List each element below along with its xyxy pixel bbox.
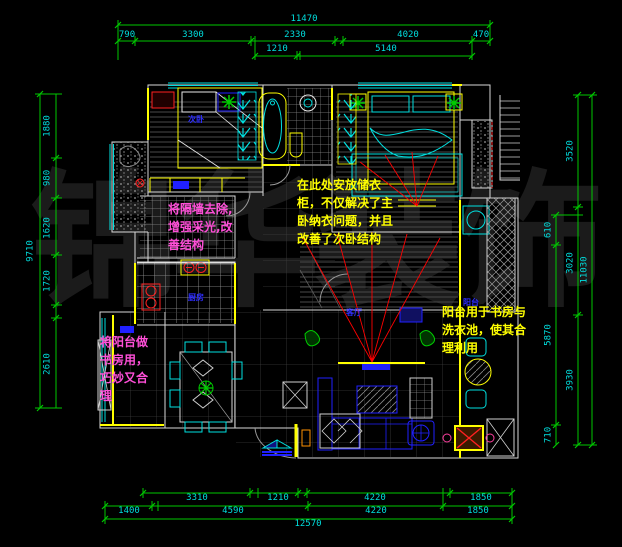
dim-bottom-4220: 4220	[364, 494, 386, 503]
dim-top-overall: 11470	[290, 15, 317, 24]
balcony-chair	[466, 390, 486, 408]
dim-right-3520: 3520	[567, 140, 576, 162]
shelf-marker	[120, 326, 134, 333]
dim-right-overall: 11030	[581, 256, 590, 283]
round-table	[465, 359, 491, 385]
dim-bottom-overall: 12570	[294, 520, 321, 529]
annotation-line: 卧纳衣问题，并且	[297, 212, 393, 230]
room-label-living: 客厅	[345, 307, 362, 317]
annotation-line: 理利用	[442, 339, 526, 357]
coffee-table	[357, 386, 397, 413]
bedroom2-window	[168, 83, 258, 88]
dim-left-1620: 1620	[44, 217, 53, 239]
tv-bedroom2	[173, 181, 189, 189]
plant-icon	[222, 95, 236, 109]
dim-right-3930: 3930	[567, 369, 576, 391]
wardrobe-hangers	[338, 94, 356, 164]
dim-bottom-4220b: 4220	[365, 507, 387, 516]
dim-right-710: 710	[545, 427, 554, 443]
tv-master	[400, 308, 422, 322]
dim-top-3300: 3300	[182, 31, 204, 40]
room-label-kitchen: 厨房	[188, 292, 204, 302]
room-label-bedroom2: 次卧	[188, 114, 204, 124]
dim-left-980: 980	[44, 170, 53, 186]
annotation-line: 洗衣池，使其合	[442, 321, 526, 339]
annotation-line: 理	[100, 387, 148, 405]
annotation-line: 增强采光,改	[168, 218, 233, 236]
annotation-line: 善结构	[168, 236, 233, 254]
dim-left-2610: 2610	[44, 353, 53, 375]
dim-left-1720: 1720	[44, 270, 53, 292]
dim-top-470: 470	[473, 31, 489, 40]
annotation-line: 柜，不仅解决了主	[297, 194, 393, 212]
column-hatch	[472, 121, 492, 188]
annotation-study: 将阳台做 书房用， 巧妙又合 理	[100, 333, 148, 405]
floorplan-canvas: 锦华装饰	[0, 0, 622, 547]
annotation-remove-wall: 将隔墙去除, 增强采光,改 善结构	[168, 200, 233, 254]
annotation-line: 巧妙又合	[100, 369, 148, 387]
dim-top-5140: 5140	[375, 45, 397, 54]
dim-top-2330: 2330	[284, 31, 306, 40]
dim-left-overall: 9710	[27, 240, 36, 262]
dim-bottom-1850b: 1850	[467, 507, 489, 516]
annotation-wardrobe: 在此处安放储衣 柜，不仅解决了主 卧纳衣问题，并且 改善了次卧结构	[297, 176, 393, 248]
floorplan-drawing: 次卧 厨房 客厅 阳台	[0, 0, 622, 547]
plant-icon	[447, 96, 461, 110]
balcony-left-hatch	[112, 142, 148, 232]
annotation-line: 将阳台做	[100, 333, 148, 351]
dresser-red	[152, 92, 174, 108]
annotation-line: 在此处安放储衣	[297, 176, 393, 194]
annotation-line: 书房用，	[100, 351, 148, 369]
wardrobe-hangers	[238, 92, 256, 160]
dim-right-610: 610	[545, 222, 554, 238]
dim-left-1880: 1880	[44, 115, 53, 137]
shaft-hatch	[487, 198, 515, 312]
cabinet-hatch	[410, 378, 432, 418]
stairs	[500, 95, 520, 180]
annotation-balcony-use: 阳台用于书房与 洗衣池，使其合 理利用	[442, 303, 526, 357]
dim-bottom-4590: 4590	[222, 507, 244, 516]
tv-living	[362, 364, 390, 370]
floor-hatches	[112, 88, 520, 457]
master-window	[358, 83, 452, 88]
dim-bottom-1400: 1400	[118, 507, 140, 516]
dim-top-4020: 4020	[397, 31, 419, 40]
dim-bottom-3310: 3310	[186, 494, 208, 503]
dim-bottom-1210: 1210	[267, 494, 289, 503]
annotation-line: 改善了次卧结构	[297, 230, 393, 248]
annotation-line: 阳台用于书房与	[442, 303, 526, 321]
dim-right-5870: 5870	[545, 324, 554, 346]
dim-right-3020: 3020	[567, 252, 576, 274]
annotation-line: 将隔墙去除,	[168, 200, 233, 218]
dim-top-1210: 1210	[266, 45, 288, 54]
dim-top-790: 790	[119, 31, 135, 40]
dim-bottom-1850: 1850	[470, 494, 492, 503]
